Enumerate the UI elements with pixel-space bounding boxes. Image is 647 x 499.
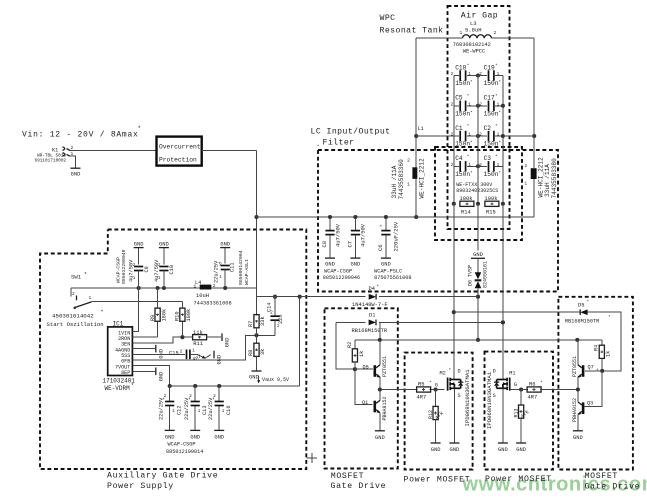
svg-text:1k: 1k	[606, 351, 612, 357]
svg-text:C18: C18	[455, 64, 466, 71]
svg-text:Q1: Q1	[362, 400, 368, 406]
svg-text:2: 2	[479, 133, 482, 138]
svg-text:+: +	[380, 225, 383, 230]
svg-text:1: 1	[407, 182, 410, 188]
svg-text:S: S	[458, 393, 461, 399]
svg-text:2: 2	[479, 72, 482, 77]
svg-text:C15: C15	[169, 351, 179, 357]
svg-text:R9: R9	[150, 315, 156, 321]
svg-text:4R7: 4R7	[528, 395, 538, 401]
svg-text:2: 2	[479, 163, 482, 168]
svg-text:22u/25V: 22u/25V	[208, 397, 214, 420]
svg-text:Start Oszillation: Start Oszillation	[47, 321, 104, 328]
svg-text:GND: GND	[214, 435, 224, 441]
svg-text:Power MOSFET: Power MOSFET	[404, 475, 471, 484]
svg-text:GND: GND	[573, 435, 583, 441]
svg-text:D4: D4	[369, 286, 375, 292]
svg-text:RB168M150TR: RB168M150TR	[352, 328, 388, 334]
svg-text:www.cntronics.com: www.cntronics.com	[462, 474, 647, 496]
svg-text:GND: GND	[159, 241, 169, 247]
svg-text:1: 1	[497, 102, 500, 107]
svg-text:*: *	[498, 80, 501, 86]
svg-text:Q5: Q5	[363, 365, 369, 371]
svg-text:C7: C7	[346, 241, 353, 248]
svg-text:R13: R13	[513, 408, 519, 417]
svg-text:Protection: Protection	[159, 157, 197, 164]
svg-text:*: *	[540, 380, 543, 386]
svg-text:1: 1	[468, 72, 471, 77]
svg-text:C1: C1	[455, 125, 463, 132]
svg-text:22u/25V: 22u/25V	[184, 397, 190, 420]
svg-text:Auxillary Gate Drive: Auxillary Gate Drive	[107, 471, 218, 481]
svg-text:*: *	[101, 310, 104, 316]
svg-text:8EP: 8EP	[121, 370, 130, 376]
svg-text:150n: 150n	[455, 111, 470, 118]
svg-text:*: *	[467, 63, 470, 69]
svg-text:2: 2	[451, 72, 454, 77]
svg-text:WCAP-PSLC: WCAP-PSLC	[374, 269, 402, 275]
svg-text:GND: GND	[351, 261, 361, 267]
svg-text:PZT0551: PZT0551	[382, 356, 388, 377]
svg-text:1: 1	[468, 102, 471, 107]
svg-text:1: 1	[497, 163, 500, 168]
svg-text:1: 1	[468, 163, 471, 168]
svg-text:1: 1	[524, 181, 527, 187]
svg-text:22u/25V: 22u/25V	[159, 397, 165, 420]
svg-text:R2: R2	[347, 342, 353, 348]
svg-text:M1: M1	[509, 370, 515, 376]
svg-text:D5: D5	[578, 302, 584, 308]
svg-text:WPC: WPC	[380, 14, 396, 23]
svg-text:885012109014: 885012109014	[166, 449, 203, 455]
svg-text:*: *	[608, 315, 611, 321]
svg-text:1: 1	[460, 30, 463, 36]
svg-text:GND: GND	[450, 447, 460, 453]
svg-text:IC1: IC1	[113, 321, 124, 328]
svg-text:C6: C6	[377, 244, 384, 251]
svg-text:C3: C3	[484, 155, 492, 162]
svg-text:S: S	[493, 393, 496, 399]
svg-text:C9: C9	[144, 266, 150, 272]
svg-text:4u7/50V: 4u7/50V	[334, 223, 341, 247]
svg-text:11k: 11k	[193, 330, 203, 336]
svg-text:G: G	[514, 382, 517, 388]
svg-text:150n: 150n	[455, 171, 470, 178]
svg-text:*: *	[470, 110, 473, 116]
svg-text:R15: R15	[486, 210, 496, 216]
svg-text:GND: GND	[225, 337, 231, 347]
svg-text:R4: R4	[594, 345, 600, 351]
svg-text:GND: GND	[165, 435, 175, 441]
svg-text:WE-WPCC: WE-WPCC	[463, 48, 485, 54]
svg-text:*: *	[467, 154, 470, 160]
svg-text:1k: 1k	[359, 351, 365, 357]
svg-text:C16: C16	[226, 405, 232, 415]
svg-text:691101710002: 691101710002	[35, 159, 67, 164]
svg-text:GND: GND	[134, 241, 144, 247]
svg-text:C14: C14	[267, 302, 273, 312]
svg-text:C4: C4	[455, 155, 463, 162]
svg-text:PZT0551: PZT0551	[572, 356, 578, 377]
svg-text:2: 2	[72, 291, 75, 297]
svg-text:MOSFET: MOSFET	[331, 472, 364, 481]
svg-text:GND: GND	[431, 447, 441, 453]
svg-text:C17: C17	[484, 95, 495, 102]
svg-text:2: 2	[494, 30, 497, 36]
svg-text:1: 1	[89, 295, 92, 301]
svg-text:C13: C13	[202, 405, 208, 415]
svg-text:IPD068N10N3GATMA1: IPD068N10N3GATMA1	[464, 369, 471, 427]
svg-text:GND: GND	[249, 375, 259, 381]
svg-text:1: 1	[497, 72, 500, 77]
svg-text:R12: R12	[428, 410, 434, 419]
svg-text:*: *	[498, 110, 501, 116]
svg-text:33uH /11A: 33uH /11A	[391, 165, 398, 198]
svg-text:*: *	[470, 80, 473, 86]
svg-text:*: *	[467, 93, 470, 99]
svg-text:10uH: 10uH	[196, 293, 209, 299]
svg-text:22n: 22n	[278, 314, 284, 324]
svg-text:GND: GND	[220, 241, 230, 247]
svg-text:74435583380: 74435583380	[551, 158, 558, 199]
svg-text:150n: 150n	[484, 141, 499, 148]
svg-text:100k: 100k	[186, 309, 192, 322]
svg-text:GND: GND	[190, 435, 200, 441]
svg-text:865080142004: 865080142004	[238, 250, 244, 285]
svg-text:C8: C8	[321, 241, 328, 248]
svg-text:2: 2	[451, 133, 454, 138]
svg-text:*: *	[470, 170, 473, 176]
svg-text:760308102142: 760308102142	[453, 42, 491, 48]
svg-text:33k: 33k	[260, 316, 266, 326]
svg-text:744383361008: 744383361008	[194, 300, 232, 306]
svg-text:GND: GND	[71, 172, 81, 178]
svg-text:D6 TVSP: D6 TVSP	[468, 265, 474, 286]
svg-text:Q7: Q7	[588, 365, 594, 371]
svg-text:1: 1	[497, 133, 500, 138]
svg-text:GND: GND	[473, 252, 483, 258]
svg-text:*: *	[470, 140, 473, 146]
svg-text:890324023025CS: 890324023025CS	[456, 188, 498, 194]
svg-text:100k: 100k	[485, 196, 498, 202]
svg-text:885012209046: 885012209046	[323, 275, 360, 281]
svg-text:150n: 150n	[484, 171, 499, 178]
svg-text:885012208048: 885012208048	[121, 249, 127, 284]
svg-text:R8: R8	[248, 350, 254, 356]
svg-text:L1: L1	[418, 126, 424, 132]
svg-text:PBHA9152: PBHA9152	[382, 396, 388, 420]
svg-text:Overcurrent: Overcurrent	[159, 144, 201, 151]
svg-text:R11: R11	[193, 341, 203, 347]
svg-text:Vin: 12 - 20V / 8Amax: Vin: 12 - 20V / 8Amax	[22, 131, 139, 140]
svg-text:C11: C11	[230, 262, 236, 272]
svg-text:Air Gap: Air Gap	[461, 11, 498, 21]
svg-text:*: *	[467, 124, 470, 130]
svg-text:D: D	[493, 369, 496, 375]
svg-text:IPD068N10N3GATMA1: IPD068N10N3GATMA1	[486, 371, 493, 429]
svg-text:RB168M150TR: RB168M150TR	[565, 318, 599, 324]
svg-text:*: *	[498, 140, 501, 146]
svg-text:150n: 150n	[455, 80, 470, 87]
svg-text:220uF/25V: 220uF/25V	[392, 221, 399, 251]
svg-text:Vaux 9,5V: Vaux 9,5V	[262, 377, 289, 383]
svg-text:WCAP-CSGP: WCAP-CSGP	[168, 442, 196, 448]
svg-text:R10: R10	[175, 311, 181, 321]
svg-text:R6: R6	[529, 382, 535, 388]
svg-text:C5: C5	[455, 95, 463, 102]
svg-text:R5: R5	[418, 382, 424, 388]
svg-text:*: *	[498, 170, 501, 176]
svg-text:100k: 100k	[460, 196, 473, 202]
svg-text:*: *	[138, 125, 142, 132]
svg-text:150n: 150n	[484, 111, 499, 118]
svg-text:74435583360: 74435583360	[398, 159, 405, 200]
svg-text:*: *	[84, 272, 87, 278]
svg-text:GND: GND	[158, 372, 164, 382]
svg-text:C19: C19	[484, 64, 495, 71]
svg-text:D: D	[458, 369, 461, 375]
svg-text:LC Input/Output: LC Input/Output	[311, 127, 391, 137]
svg-text:WE-VDRM: WE-VDRM	[105, 385, 131, 392]
svg-text:824550161: 824550161	[482, 261, 488, 288]
svg-text:GND: GND	[381, 261, 391, 267]
svg-text:GND: GND	[325, 261, 335, 267]
svg-text:2: 2	[524, 163, 527, 169]
svg-text:GND: GND	[158, 349, 164, 359]
svg-text:180k: 180k	[161, 309, 167, 322]
svg-text:SW1: SW1	[71, 274, 82, 281]
svg-text:1: 1	[194, 283, 197, 289]
svg-text:WCAP-ASLI: WCAP-ASLI	[244, 259, 250, 285]
svg-text:Gate Drive: Gate Drive	[331, 481, 387, 491]
svg-text:450301014042: 450301014042	[52, 313, 94, 320]
svg-text:*: *	[429, 380, 432, 386]
svg-text:C2: C2	[484, 125, 492, 132]
svg-text:PBHA9152: PBHA9152	[572, 398, 578, 422]
svg-text:.: .	[316, 141, 320, 149]
svg-text:4u7/50V: 4u7/50V	[360, 223, 367, 247]
svg-text:*: *	[587, 299, 590, 305]
svg-text:GND: GND	[498, 447, 508, 453]
svg-text:*: *	[495, 154, 498, 160]
svg-text:2: 2	[407, 158, 410, 164]
svg-text:*: *	[495, 93, 498, 99]
svg-text:1N4148W-7-F: 1N4148W-7-F	[352, 302, 388, 308]
svg-text:G: G	[435, 383, 438, 389]
svg-text:Filter: Filter	[323, 138, 355, 148]
svg-text:M2: M2	[440, 371, 446, 377]
svg-text:4R7: 4R7	[417, 395, 427, 401]
svg-text:Q3: Q3	[587, 401, 593, 407]
svg-text:GND: GND	[516, 447, 526, 453]
svg-text:GND: GND	[375, 435, 385, 441]
svg-text:.: .	[124, 323, 127, 329]
svg-text:5.8uH: 5.8uH	[465, 27, 482, 34]
svg-text:WCAP-CSGP: WCAP-CSGP	[324, 269, 352, 275]
svg-text:WE-HCI_2212: WE-HCI_2212	[419, 158, 426, 199]
svg-text:Power Supply: Power Supply	[107, 481, 174, 491]
svg-text:WCAP-CSGP: WCAP-CSGP	[115, 257, 121, 283]
svg-text:2: 2	[451, 163, 454, 168]
svg-text:*: *	[495, 63, 498, 69]
svg-text:150n: 150n	[484, 80, 499, 87]
svg-text:1: 1	[468, 133, 471, 138]
svg-text:2: 2	[479, 102, 482, 107]
svg-text:C12: C12	[176, 405, 182, 415]
svg-text:R14: R14	[461, 210, 471, 216]
svg-text:D1: D1	[369, 312, 375, 318]
svg-text:Resonat Tank: Resonat Tank	[380, 26, 444, 36]
svg-text:2: 2	[451, 102, 454, 107]
svg-text:R7: R7	[248, 321, 254, 327]
svg-text:875075561008: 875075561008	[374, 275, 411, 281]
svg-text:150n: 150n	[455, 141, 470, 148]
svg-text:C10: C10	[169, 265, 175, 275]
svg-text:*: *	[131, 383, 134, 389]
svg-text:+: +	[377, 284, 380, 289]
svg-text:*: *	[449, 368, 452, 374]
svg-text:2: 2	[213, 283, 216, 289]
svg-text:3k: 3k	[260, 349, 266, 355]
svg-text:*: *	[495, 124, 498, 130]
